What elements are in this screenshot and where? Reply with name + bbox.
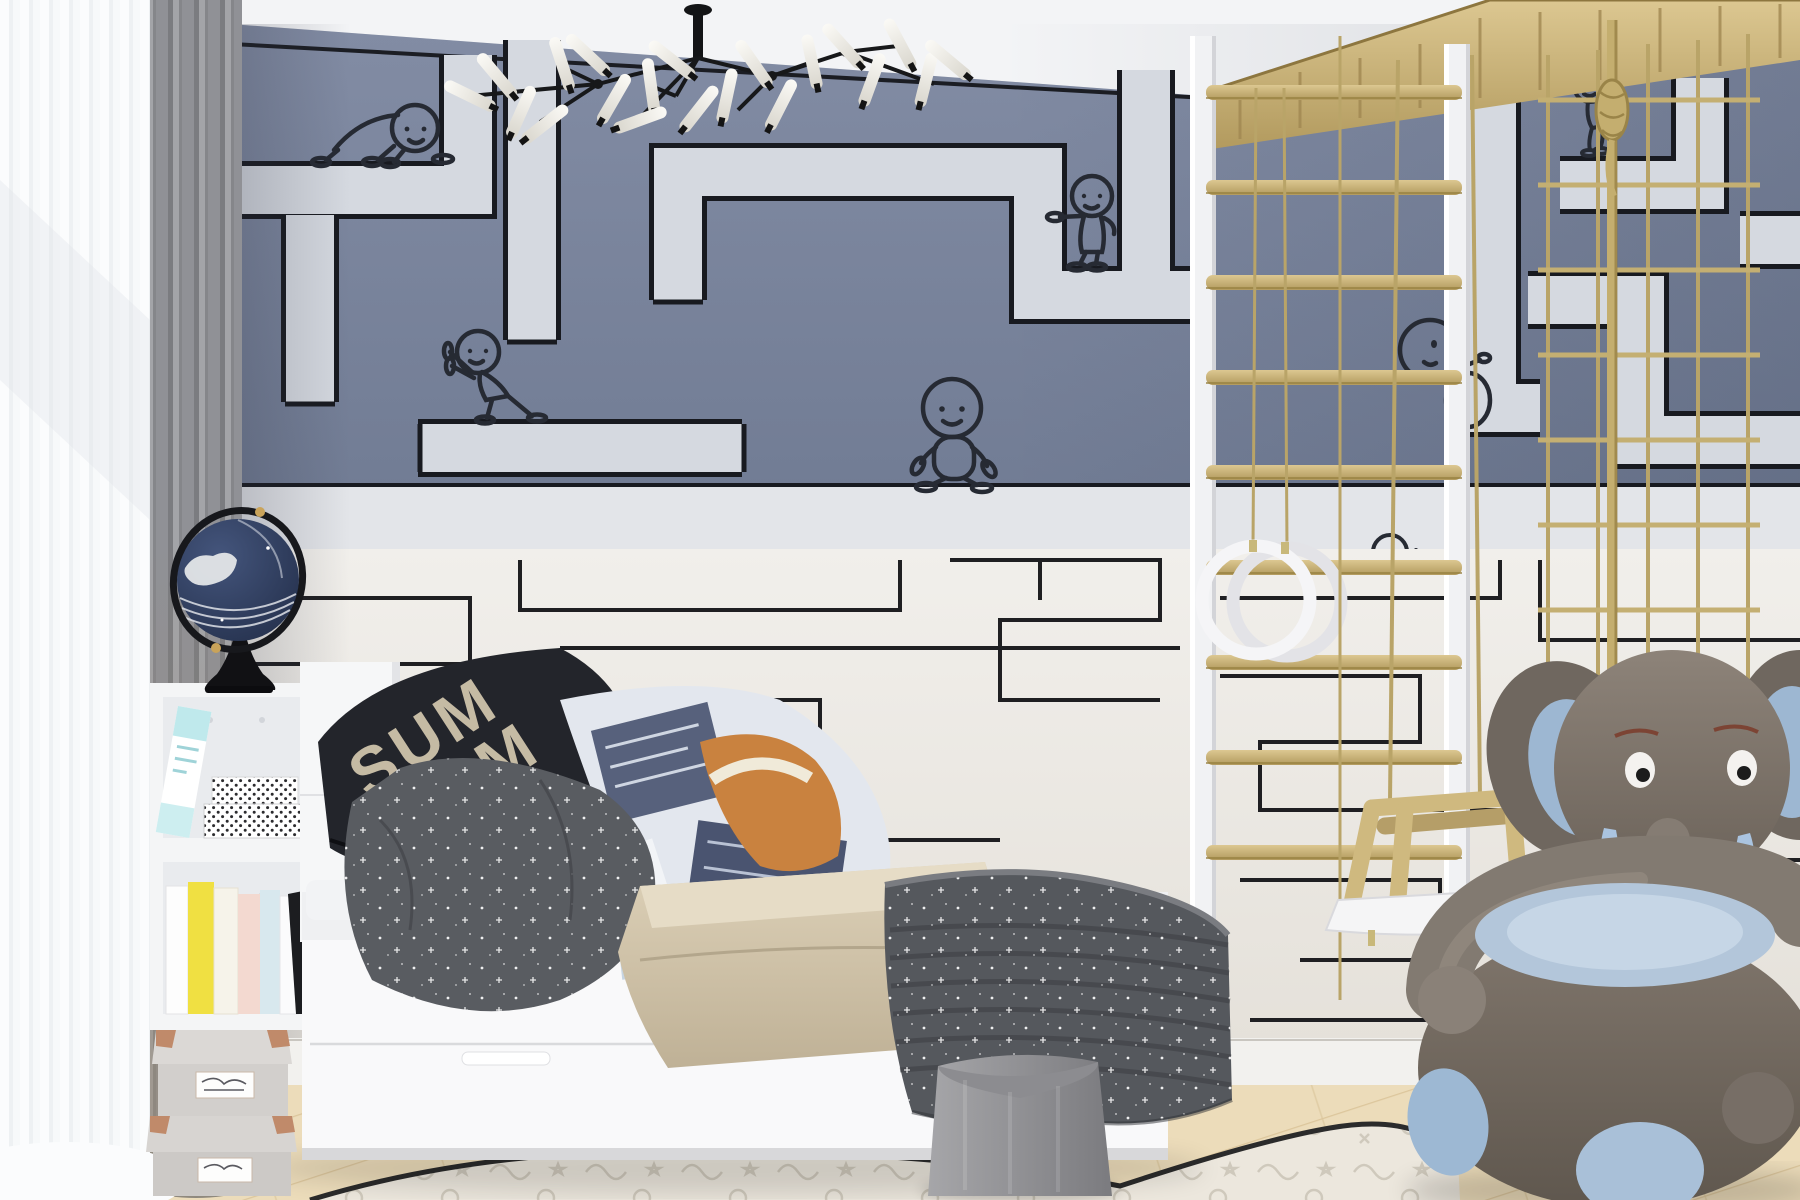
book-row xyxy=(166,882,316,1014)
book xyxy=(238,894,260,1014)
sheer-curtain xyxy=(0,0,150,1200)
elephant-paw xyxy=(1722,1072,1794,1144)
drawer-handle xyxy=(462,1052,550,1065)
bookshelf xyxy=(150,683,318,1030)
pattern-box-small xyxy=(212,777,298,804)
fabric-basket xyxy=(920,1055,1120,1200)
elephant-paw xyxy=(1418,966,1486,1034)
pattern-box-large xyxy=(204,804,304,838)
box-label xyxy=(196,1072,254,1098)
bedroom-photo: SUM LAM STAR xyxy=(0,0,1800,1200)
book xyxy=(166,886,188,1014)
scene: SUM LAM STAR xyxy=(0,0,1800,1200)
book xyxy=(188,882,214,1014)
storage-boxes xyxy=(146,1030,297,1196)
box-label xyxy=(198,1158,252,1182)
book xyxy=(260,890,280,1014)
book xyxy=(214,888,238,1014)
